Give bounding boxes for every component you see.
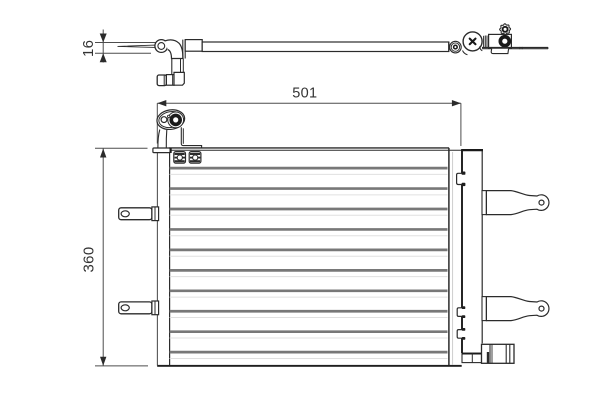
svg-text:16: 16	[80, 40, 97, 57]
svg-text:360: 360	[81, 247, 98, 273]
svg-text:501: 501	[292, 86, 317, 102]
